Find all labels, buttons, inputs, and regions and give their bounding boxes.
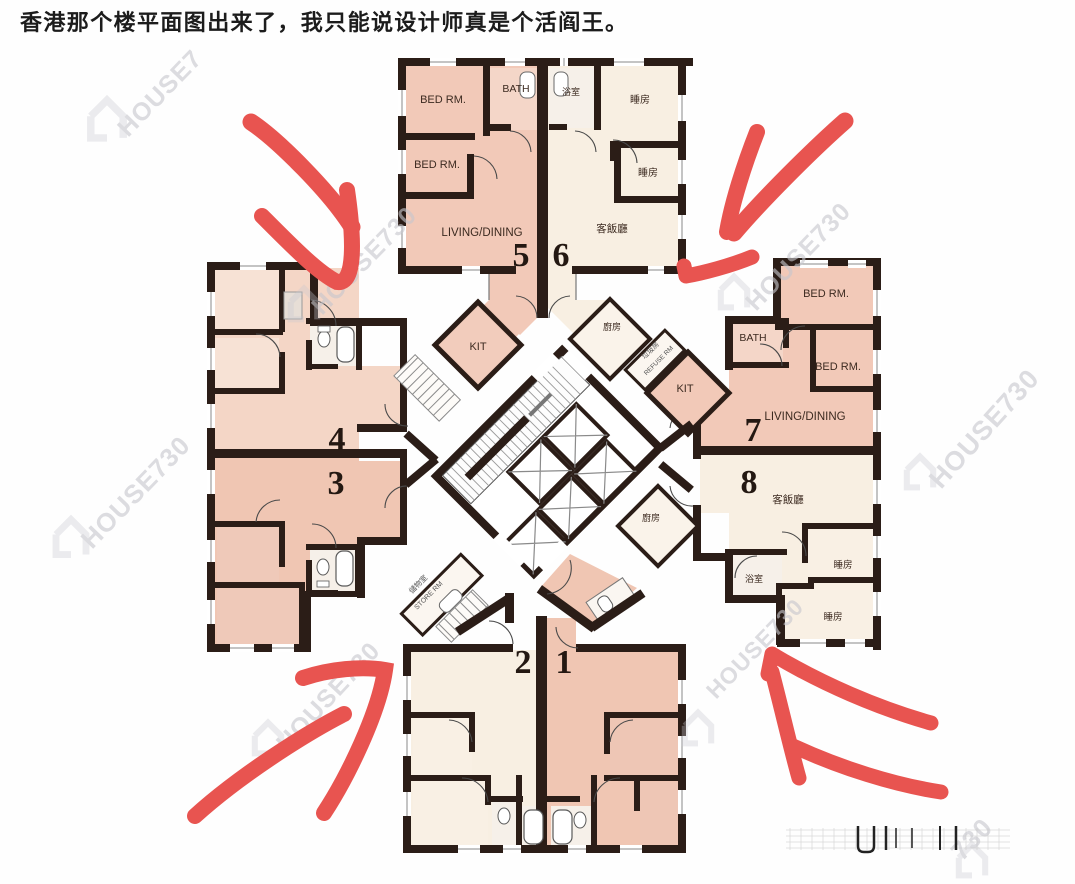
svg-text:BED RM.: BED RM. [803,288,849,300]
svg-text:睡房: 睡房 [823,611,842,623]
svg-text:6: 6 [553,237,570,274]
svg-text:廚房: 廚房 [603,321,621,332]
svg-text:LIVING/DINING: LIVING/DINING [441,227,522,239]
svg-text:睡房: 睡房 [638,166,658,179]
svg-text:浴室: 浴室 [745,573,763,584]
svg-text:7: 7 [745,412,762,449]
svg-text:3: 3 [328,465,345,502]
svg-text:BATH: BATH [502,83,529,95]
svg-text:睡房: 睡房 [833,559,852,571]
svg-text:4: 4 [329,421,346,458]
svg-text:客飯廳: 客飯廳 [772,493,804,506]
svg-text:BED RM.: BED RM. [815,361,861,373]
svg-text:8: 8 [741,464,758,501]
svg-text:睡房: 睡房 [630,93,650,106]
svg-text:5: 5 [513,237,530,274]
svg-text:1: 1 [556,644,573,681]
svg-text:客飯廳: 客飯廳 [596,222,628,235]
svg-text:KIT: KIT [676,383,693,395]
svg-text:2: 2 [515,644,532,681]
svg-text:BATH: BATH [739,332,766,344]
svg-text:BED RM.: BED RM. [420,94,466,106]
svg-text:廚房: 廚房 [642,512,660,523]
svg-text:香港那个楼平面图出来了，我只能说设计师真是个活阎王。: 香港那个楼平面图出来了，我只能说设计师真是个活阎王。 [20,10,628,35]
svg-text:KIT: KIT [469,341,486,353]
svg-text:BED RM.: BED RM. [414,159,460,171]
svg-text:LIVING/DINING: LIVING/DINING [764,411,845,423]
svg-text:浴室: 浴室 [562,86,580,97]
